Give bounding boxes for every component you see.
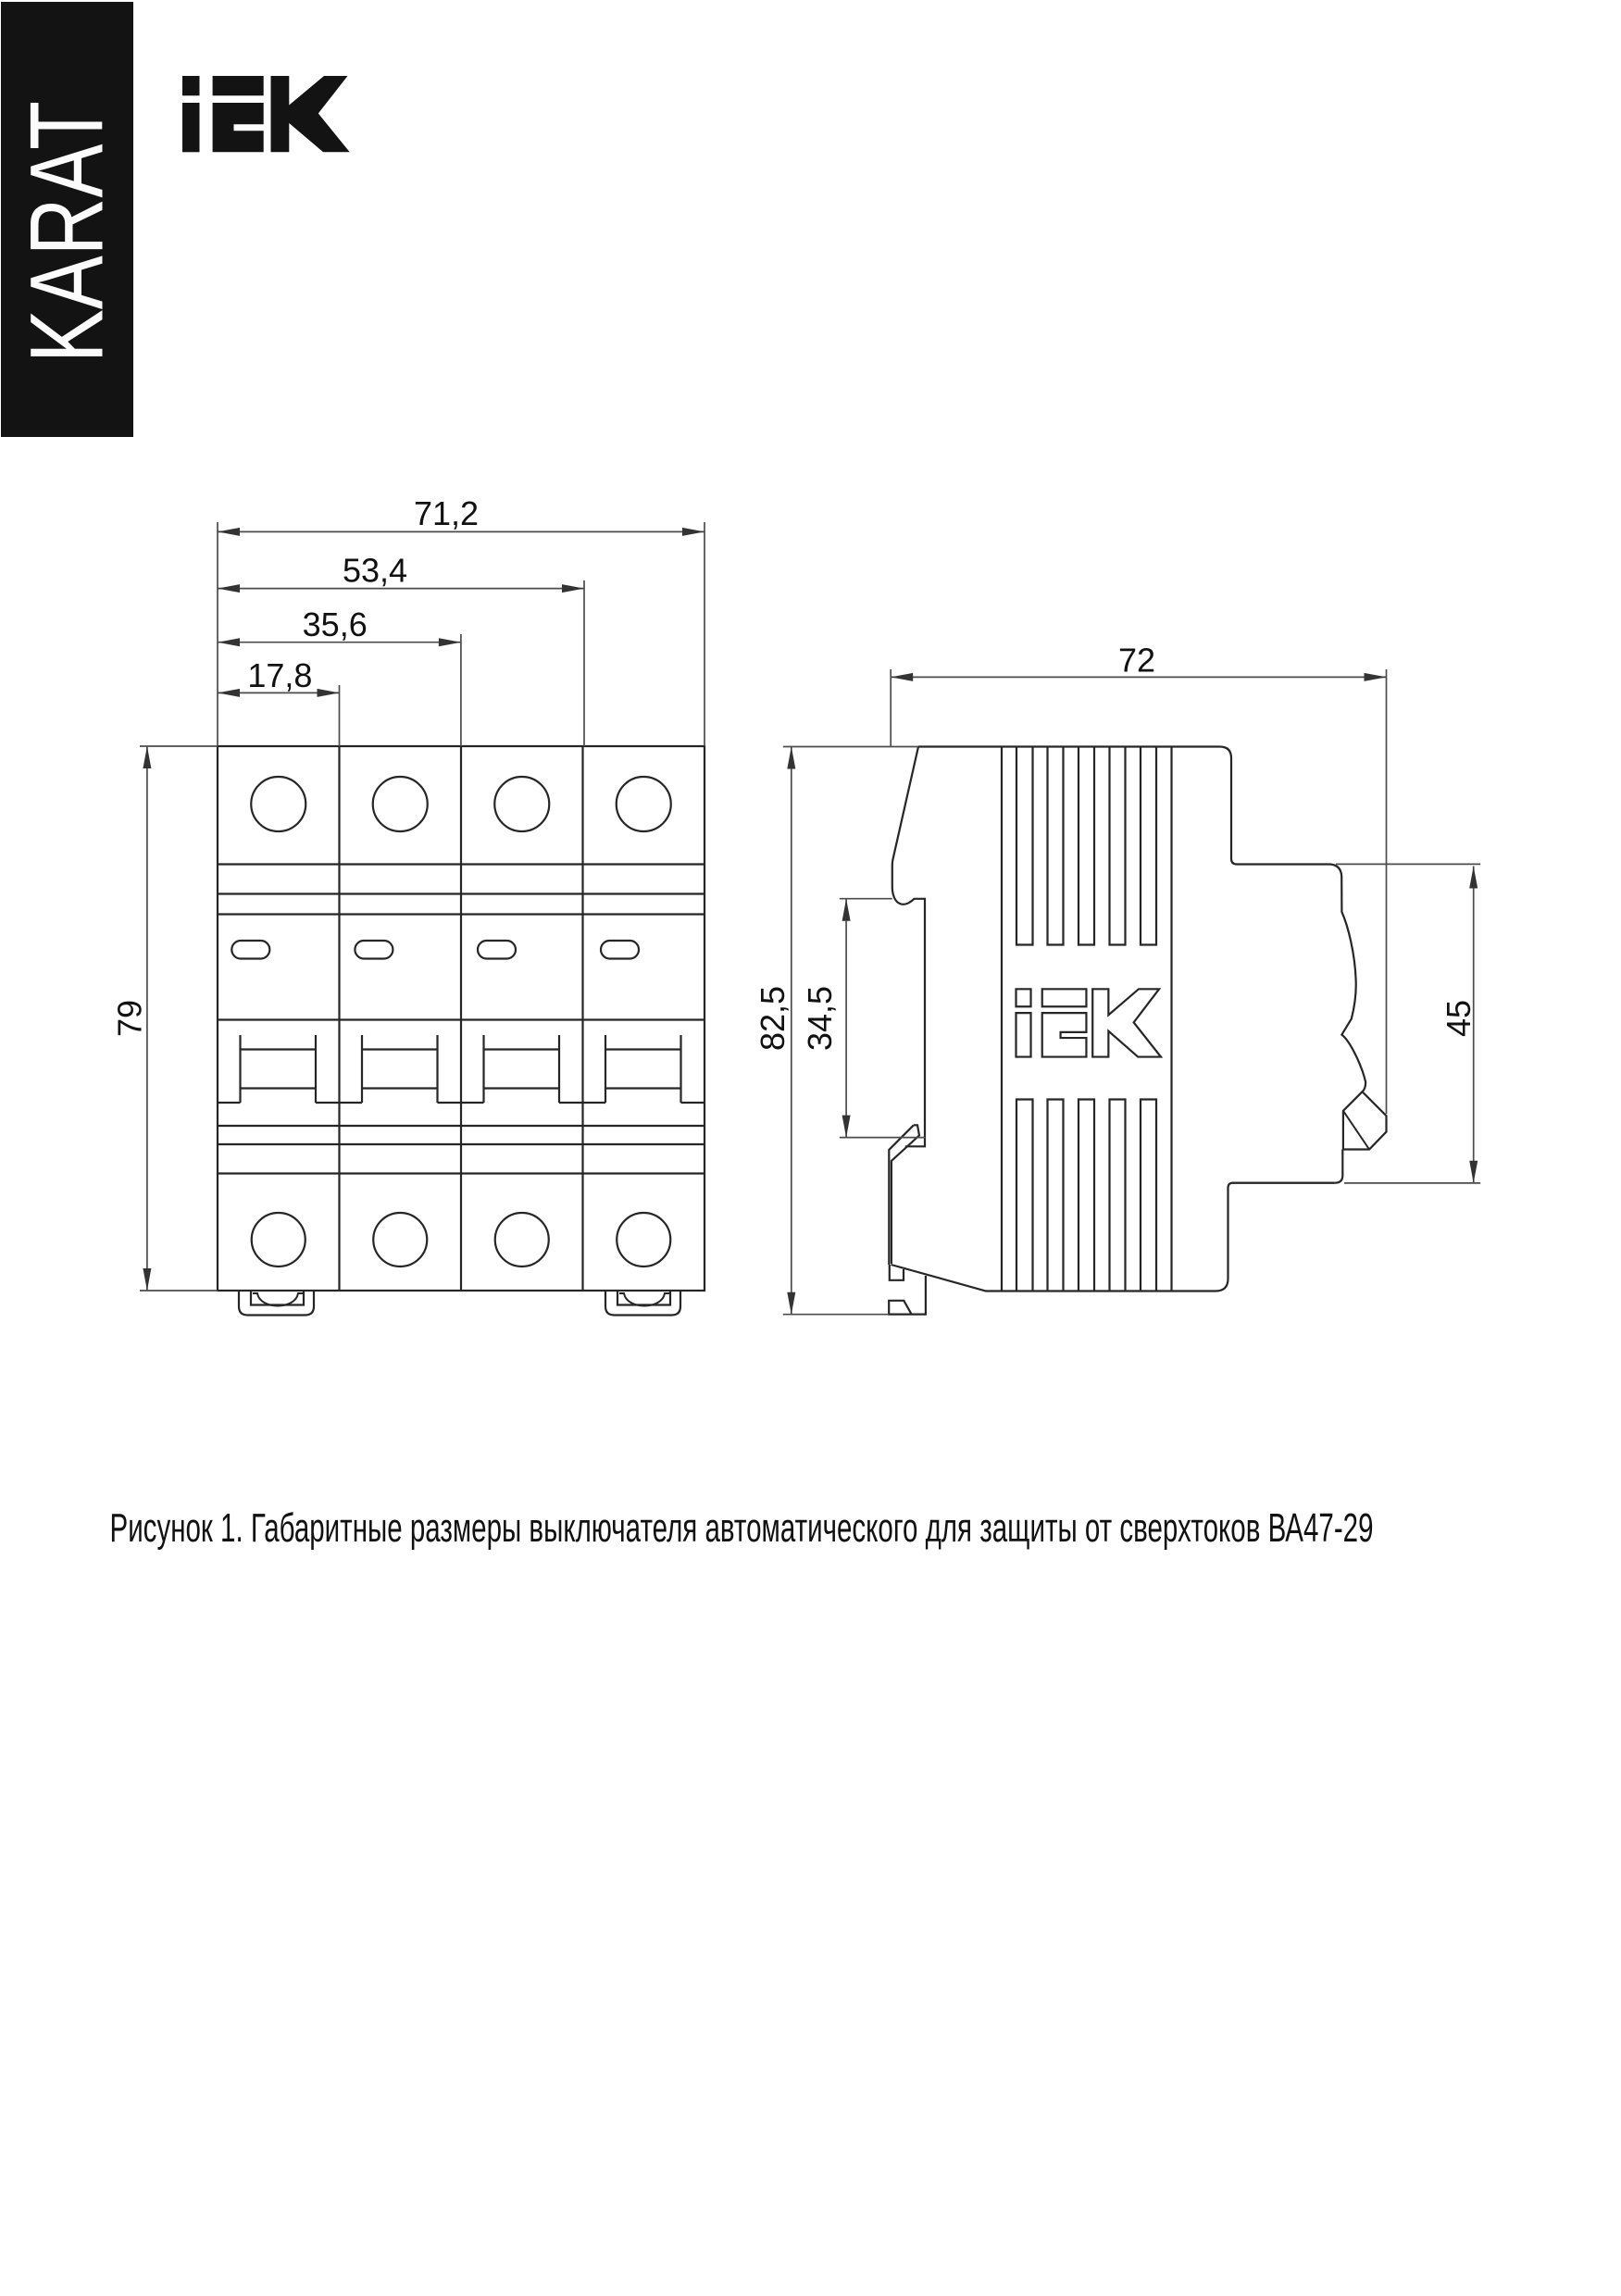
svg-text:KARAT: KARAT (9, 101, 125, 363)
svg-text:71,2: 71,2 (414, 494, 479, 532)
svg-text:79: 79 (111, 1000, 149, 1037)
svg-text:72: 72 (1118, 642, 1155, 680)
svg-text:53,4: 53,4 (343, 552, 407, 590)
svg-text:17,8: 17,8 (247, 656, 312, 694)
svg-text:35,6: 35,6 (303, 605, 368, 643)
svg-text:45: 45 (1440, 1000, 1478, 1037)
svg-text:82,5: 82,5 (754, 986, 792, 1051)
svg-text:34,5: 34,5 (801, 986, 839, 1051)
svg-text:Рисунок 1. Габаритные размеры: Рисунок 1. Габаритные размеры выключател… (110, 1505, 1374, 1551)
